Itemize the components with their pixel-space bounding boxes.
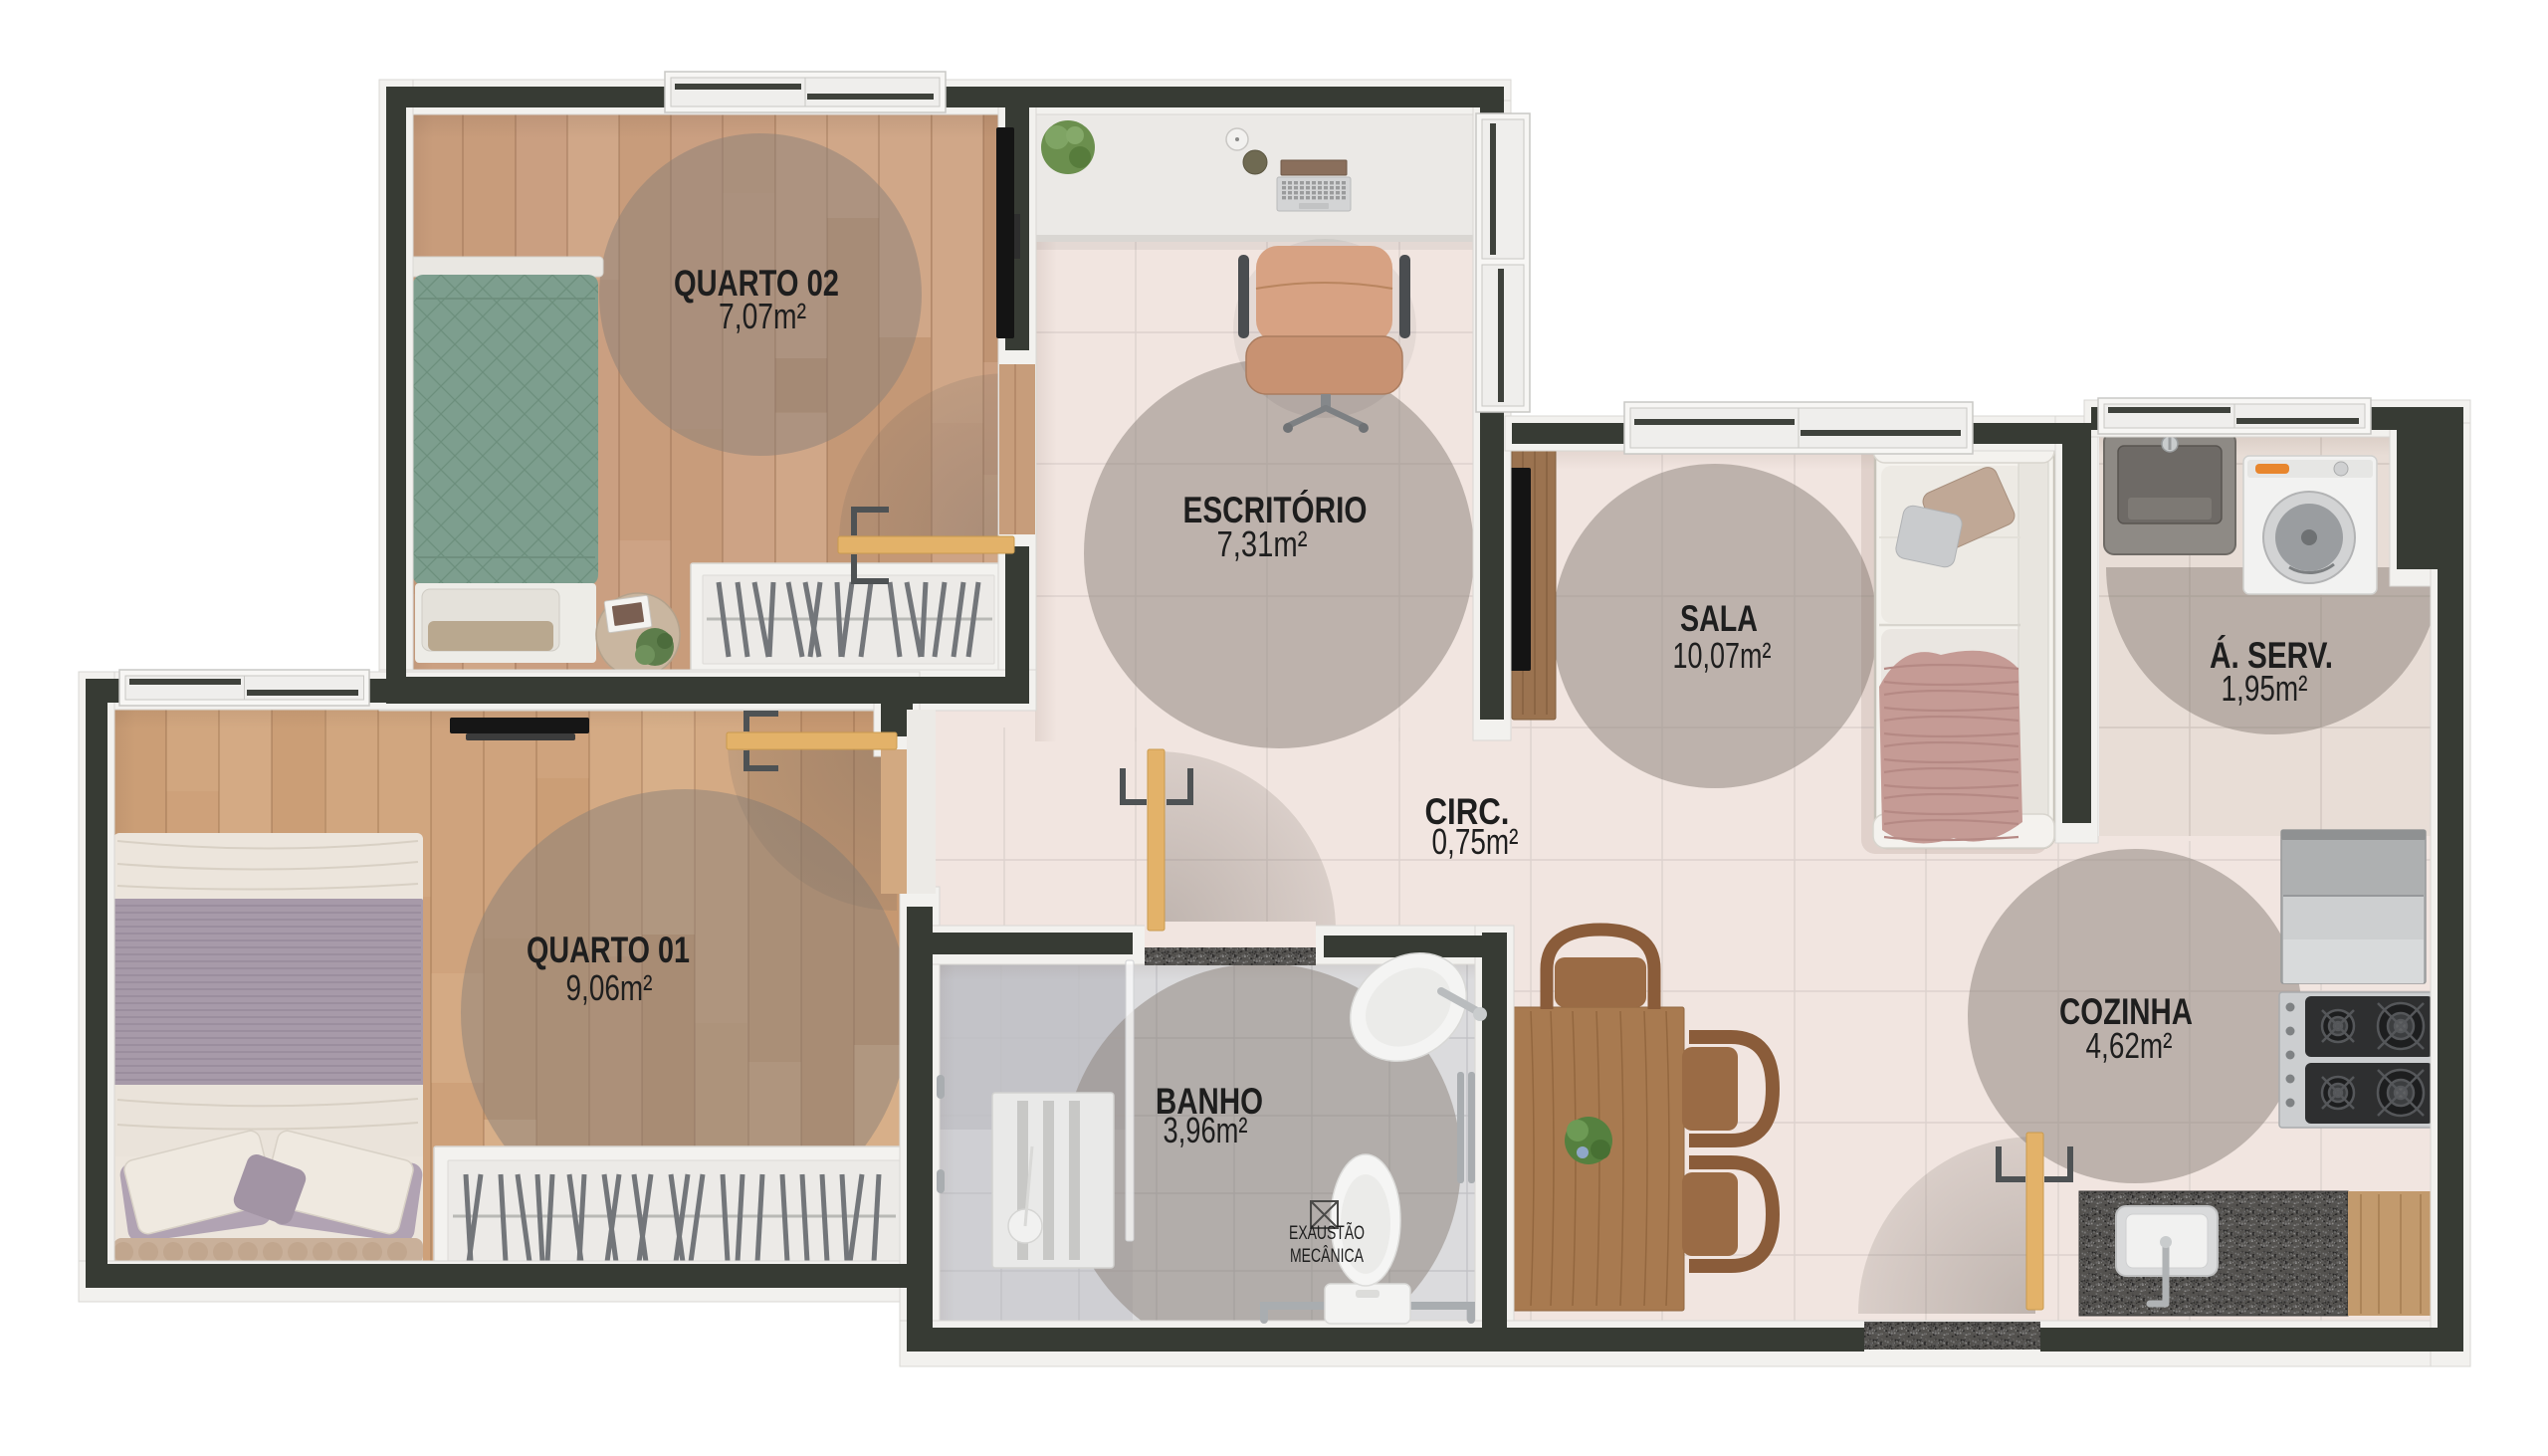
svg-text:EXAUSTÃO: EXAUSTÃO <box>1289 1221 1365 1244</box>
svg-text:0,75m²: 0,75m² <box>1432 822 1519 862</box>
svg-text:MECÂNICA: MECÂNICA <box>1290 1245 1365 1267</box>
svg-text:7,07m²: 7,07m² <box>719 297 806 336</box>
svg-text:3,96m²: 3,96m² <box>1164 1110 1248 1150</box>
svg-text:10,07m²: 10,07m² <box>1673 635 1772 676</box>
svg-text:1,95m²: 1,95m² <box>2222 669 2308 709</box>
svg-text:SALA: SALA <box>1680 599 1758 640</box>
svg-text:4,62m²: 4,62m² <box>2086 1026 2173 1066</box>
svg-text:QUARTO 01: QUARTO 01 <box>527 931 690 971</box>
svg-text:7,31m²: 7,31m² <box>1217 523 1308 564</box>
svg-text:9,06m²: 9,06m² <box>566 968 653 1008</box>
